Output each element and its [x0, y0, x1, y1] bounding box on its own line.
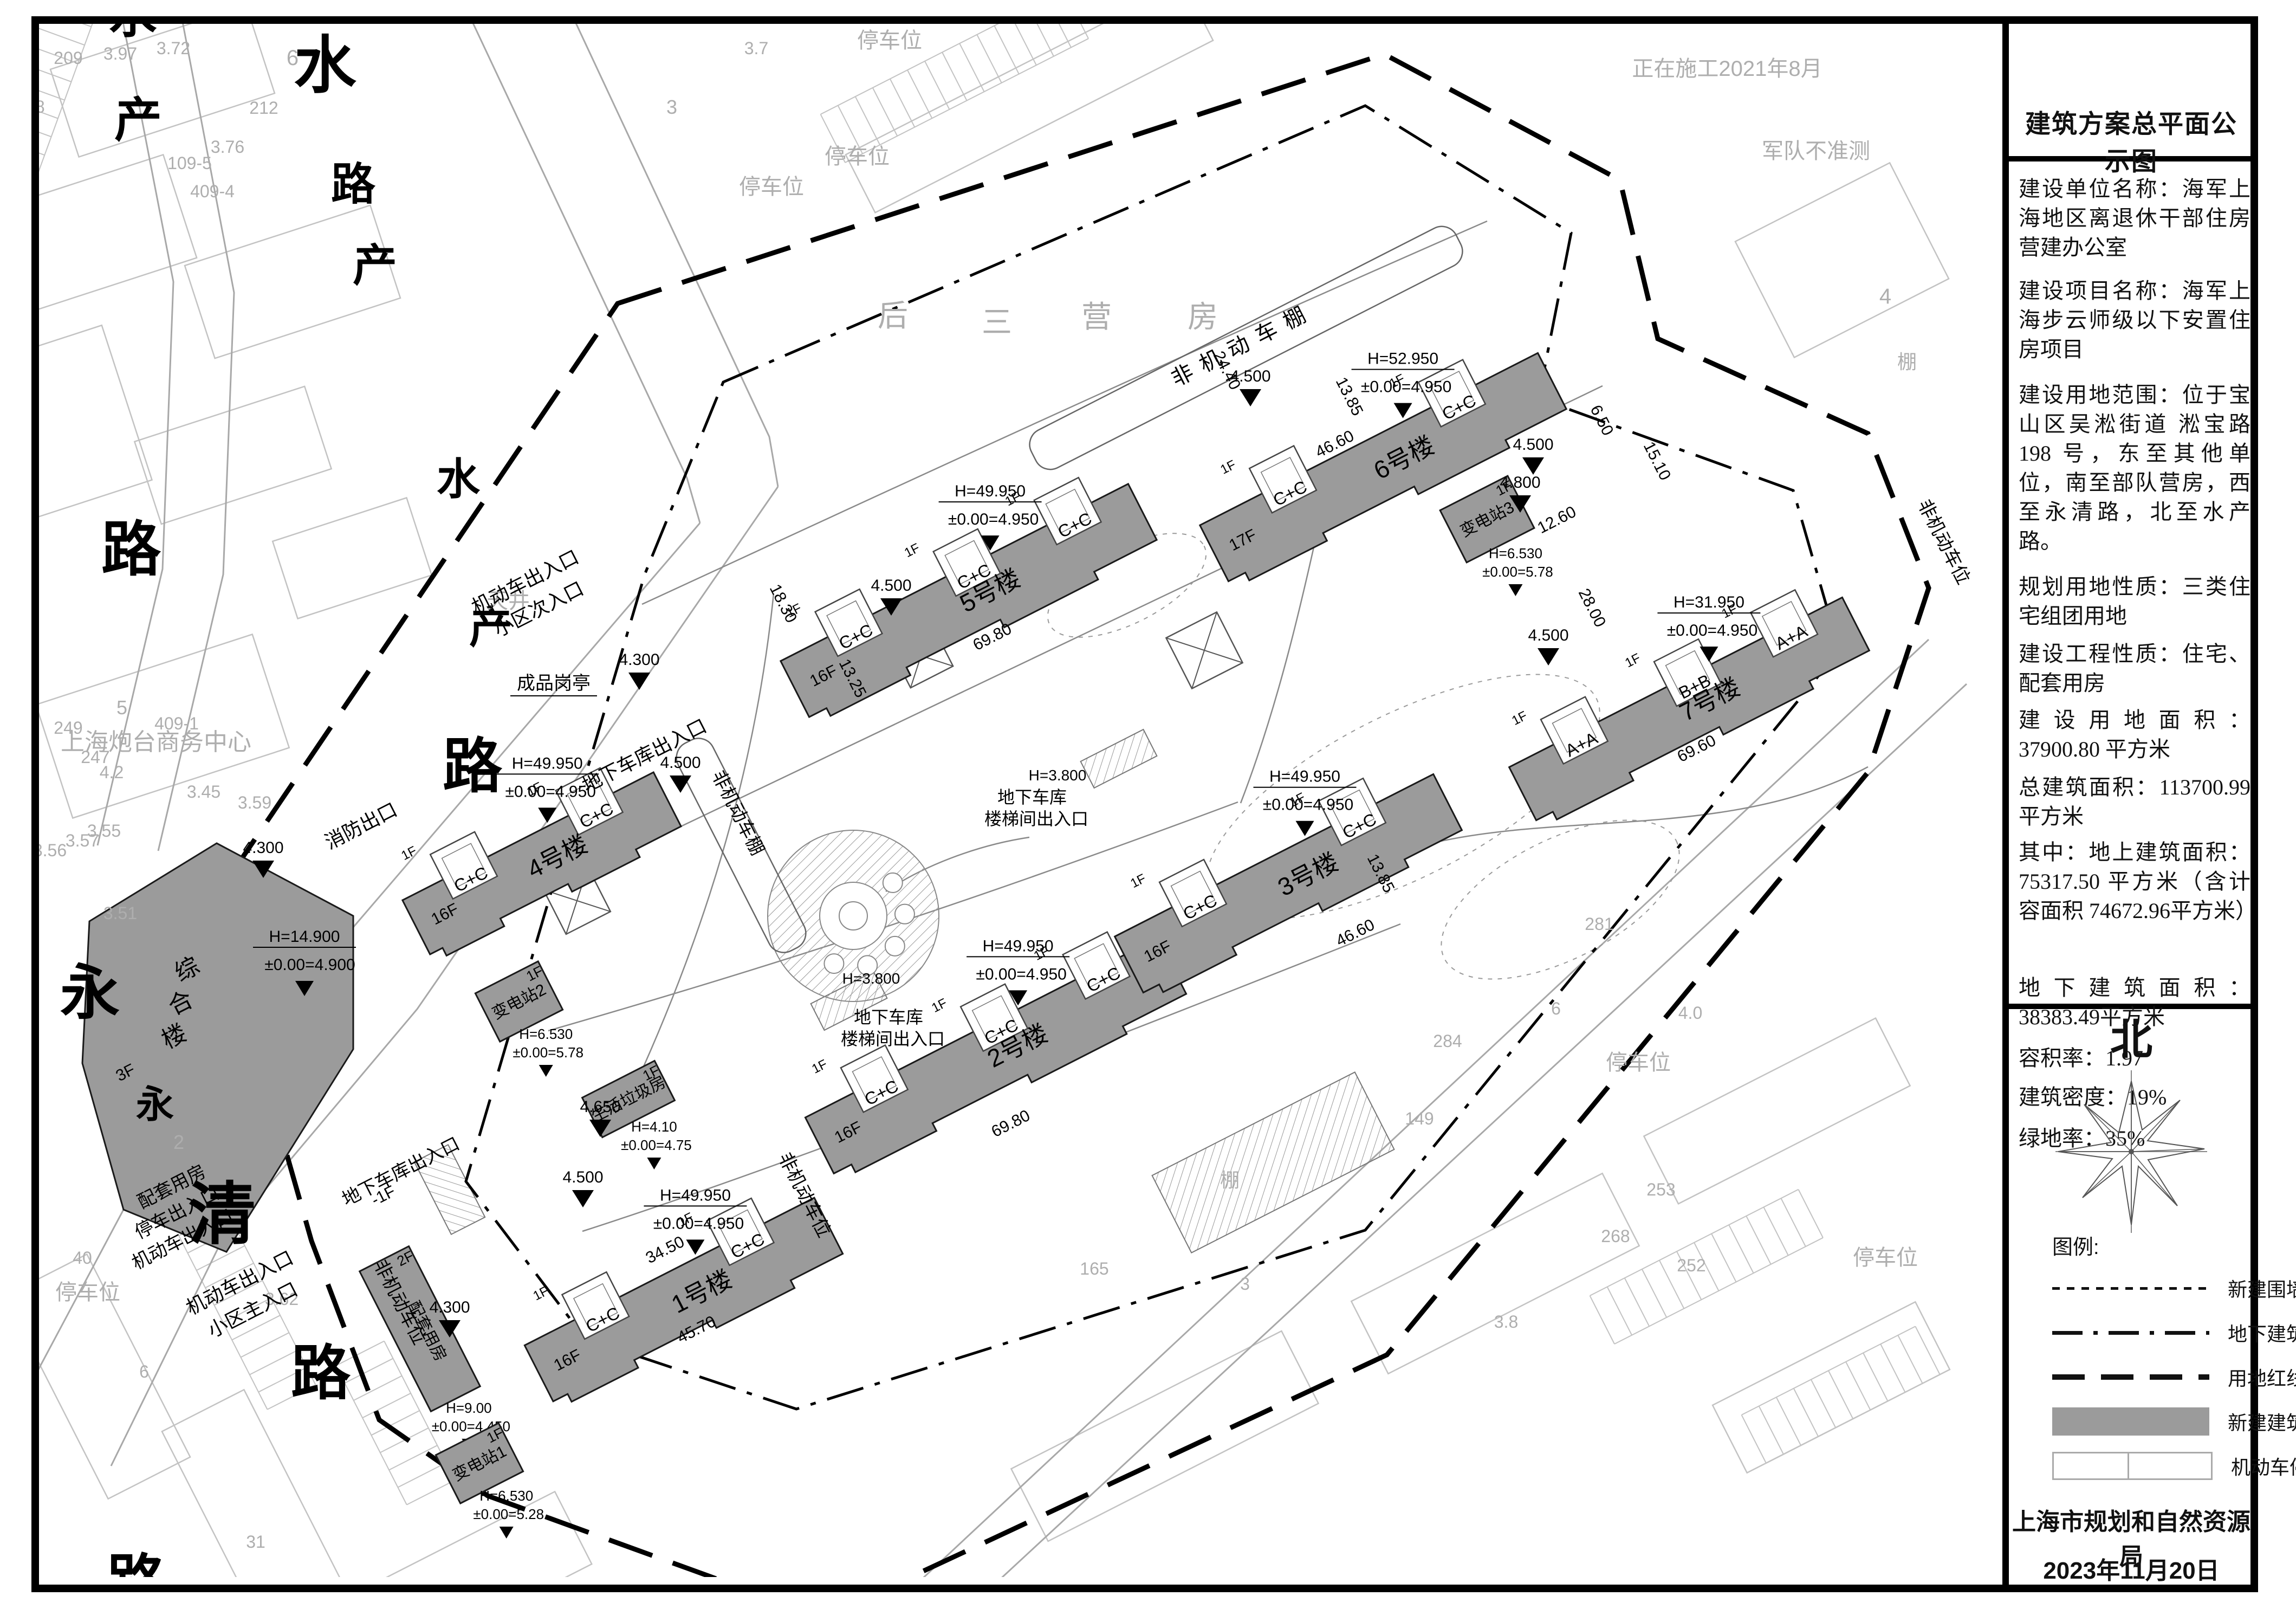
- panel-divider: [2002, 16, 2009, 1592]
- legend-sample-icon: [2052, 1374, 2209, 1380]
- legend-item-label: 地下建筑轮廓线: [2228, 1319, 2296, 1347]
- legend-item-1: 地下建筑轮廓线: [2052, 1319, 2258, 1347]
- legend-sample-icon: [2052, 1452, 2213, 1480]
- info-line-1: 建设项目名称：海军上海步云师级以下安置住房项目: [2019, 276, 2250, 364]
- legend-item-3: 新建建筑: [2052, 1407, 2258, 1436]
- project-info: 建设单位名称：海军上海地区离退休干部住房营建办公室建设项目名称：海军上海步云师级…: [2019, 175, 2250, 1153]
- legend-item-label: 机动车停车位: [2231, 1452, 2296, 1480]
- info-line-7: 其中：地上建筑面积：75317.50 平方米（含计容面积 74672.96平方米…: [2019, 838, 2250, 926]
- info-line-6: 总建筑面积：113700.99平方米: [2019, 773, 2250, 831]
- info-line-0: 建设单位名称：海军上海地区离退休干部住房营建办公室: [2019, 175, 2250, 262]
- info-line-2: 建设用地范围：位于宝山区吴淞街道 淞宝路 198 号，东至其他单位，南至部队营房…: [2019, 380, 2250, 556]
- legend-item-0: 新建围墙: [2052, 1274, 2258, 1302]
- legend-sample-icon: [2052, 1407, 2209, 1436]
- info-line-3: 规划用地性质：三类住宅组团用地: [2019, 572, 2250, 631]
- legend-title: 图例:: [2052, 1230, 2258, 1260]
- info-line-5: 建设用地面积：37900.80 平方米: [2019, 706, 2250, 764]
- legend-item-4: 机动车停车位: [2052, 1452, 2258, 1480]
- publish-date: 2023年11月20日: [2005, 1551, 2258, 1586]
- legend: 图例: 新建围墙地下建筑轮廓线用地红线新建建筑机动车停车位: [2052, 1230, 2258, 1496]
- legend-item-2: 用地红线: [2052, 1363, 2258, 1391]
- page-border: [31, 16, 2258, 1592]
- compass-rose-icon: [2042, 1062, 2221, 1241]
- page-title: 建筑方案总平面公示图: [2013, 103, 2249, 178]
- legend-sample-icon: [2052, 1331, 2209, 1335]
- legend-item-label: 新建建筑: [2228, 1407, 2296, 1436]
- north-indicator: 北: [2005, 1017, 2258, 1244]
- legend-item-label: 新建围墙: [2228, 1274, 2296, 1302]
- legend-item-label: 用地红线: [2228, 1363, 2296, 1391]
- info-line-4: 建设工程性质：住宅、配套用房: [2019, 639, 2250, 698]
- legend-sample-icon: [2052, 1287, 2209, 1290]
- north-label: 北: [2005, 1017, 2258, 1062]
- site-plan-sheet: C+C1FC+C1F16F1号楼H=49.950±0.00=4.950C+C1F…: [0, 0, 2296, 1622]
